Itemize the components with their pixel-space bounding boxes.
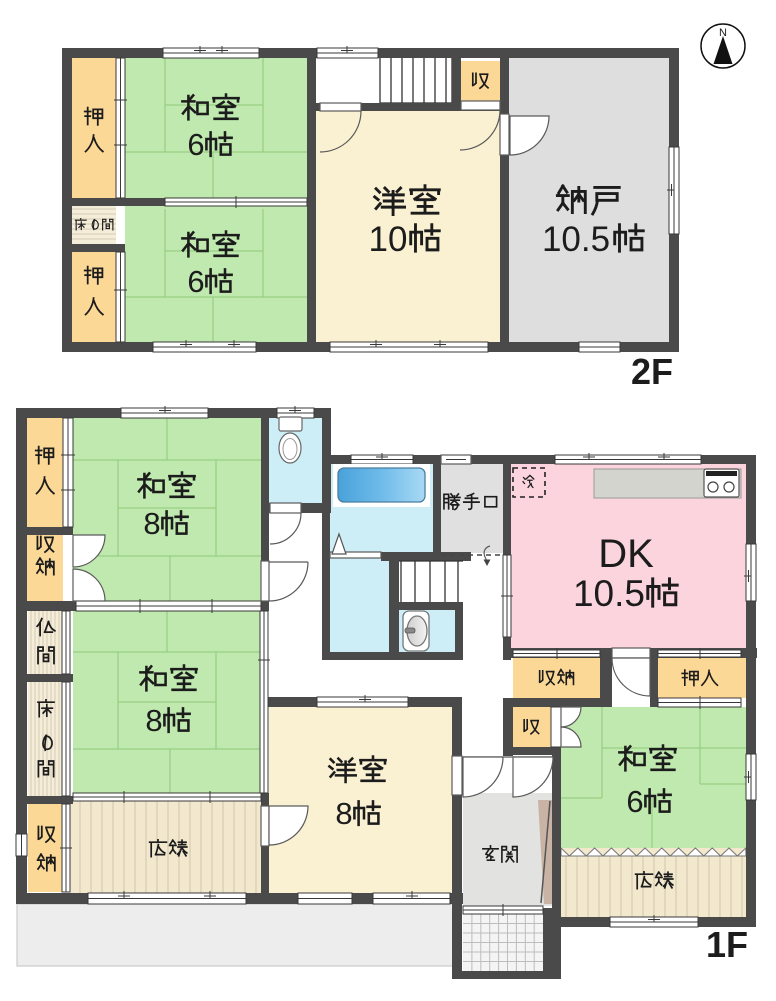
svg-text:8: 8 [335,796,352,831]
svg-text:6: 6 [187,264,204,299]
svg-text:6: 6 [626,784,643,819]
svg-text:10: 10 [369,220,408,259]
svg-text:2F: 2F [631,351,673,392]
svg-text:6: 6 [187,127,204,162]
svg-text:1F: 1F [706,924,748,965]
svg-text:10.5: 10.5 [573,573,645,614]
svg-text:8: 8 [143,506,160,541]
svg-text:DK: DK [598,532,654,576]
svg-text:10.5: 10.5 [542,220,610,259]
svg-text:8: 8 [145,703,162,738]
